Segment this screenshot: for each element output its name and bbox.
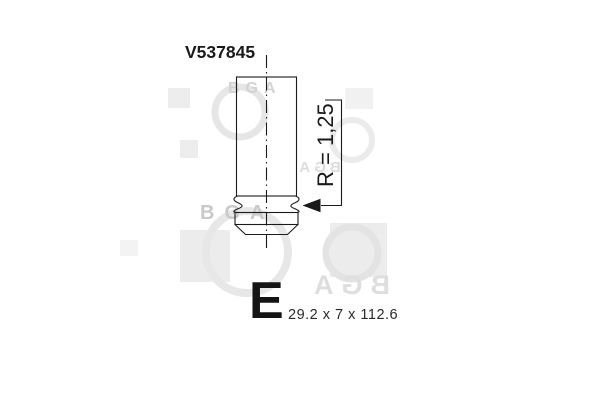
bga-watermark: BGA BGA BGA BGA — [120, 80, 390, 300]
watermark-block — [180, 140, 198, 158]
valve-technical-drawing: BGA BGA BGA BGA V537845 R = 1,25 E 29. — [0, 0, 600, 400]
part-number-label: V537845 — [185, 42, 255, 62]
watermark-block — [345, 88, 373, 109]
dimensions-label: 29.2 x 7 x 112.6 — [288, 307, 398, 323]
watermark-block — [120, 240, 138, 256]
watermark-ring — [332, 120, 372, 160]
bga-watermark-text: BGA — [306, 270, 390, 300]
radius-label: R = 1,25 — [313, 103, 338, 187]
dimension-arrow-icon — [303, 199, 321, 212]
valve-type-letter: E — [249, 272, 284, 330]
keeper-groove-right — [291, 196, 299, 213]
watermark-block — [168, 88, 190, 108]
valve-catalog-drawing: BGA BGA BGA BGA V537845 R = 1,25 E 29. — [0, 0, 600, 400]
